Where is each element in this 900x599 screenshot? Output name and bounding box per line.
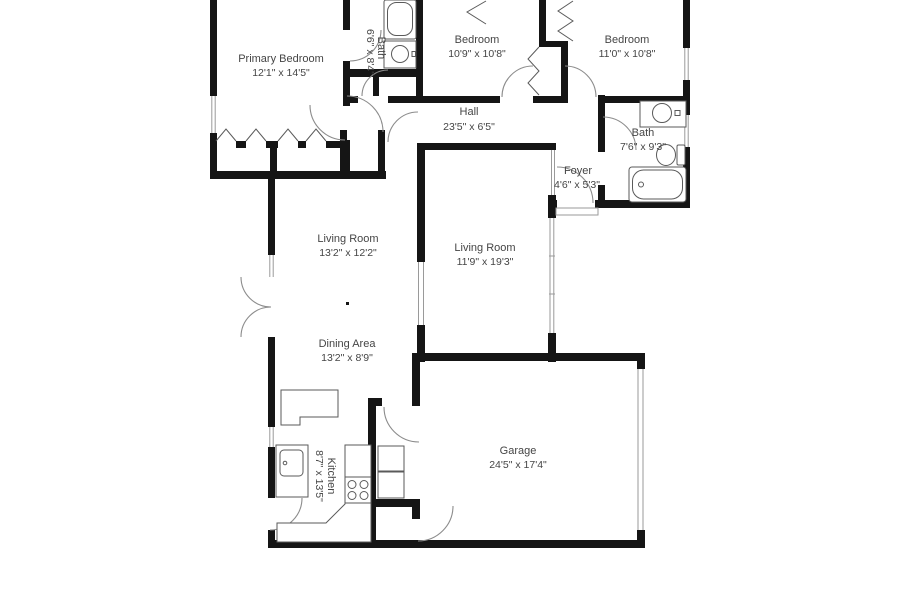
wall-segment <box>298 141 306 148</box>
bifold-door-icon <box>558 1 573 41</box>
wall-segment <box>210 0 217 96</box>
wall-segment <box>598 95 605 152</box>
wall-segment <box>388 96 500 103</box>
room-dims: 13'2" x 8'9" <box>321 352 373 364</box>
sink-icon <box>640 101 686 127</box>
room-label-living-room-2: Living Room 11'9" x 19'3" <box>454 242 515 268</box>
window <box>549 218 555 333</box>
room-dims: 24'5" x 17'4" <box>489 459 547 471</box>
interior-marker-dot <box>346 302 349 305</box>
room-label-bedroom-2: Bedroom 11'0" x 10'8" <box>599 34 656 60</box>
room-dims: 6'6" x 8'4" <box>364 29 376 75</box>
door-arc <box>384 407 419 442</box>
bifold-door-icon <box>467 1 486 24</box>
kitchen-counter <box>281 390 338 425</box>
floor-plan-drawing: Primary Bedroom 12'1" x 14'5" Bath 6'6" … <box>0 0 900 599</box>
wall-segment <box>561 41 568 103</box>
wall-segment <box>268 447 275 498</box>
room-name: Dining Area <box>319 338 377 350</box>
window <box>685 48 688 80</box>
wall-segment <box>637 530 645 540</box>
room-label-garage: Garage 24'5" x 17'4" <box>489 445 547 471</box>
bathtub-icon <box>629 167 686 202</box>
room-label-hall-bath: Bath 7'6" x 9'3" <box>620 127 666 153</box>
bifold-door-icon <box>216 129 236 141</box>
room-label-living-room-1: Living Room 13'2" x 12'2" <box>317 233 378 259</box>
bifold-door-icon <box>246 129 266 141</box>
wall-segment <box>268 337 275 427</box>
door-arc-french-door <box>241 277 271 307</box>
room-label-foyer: Foyer 4'6" x 5'3" <box>554 165 600 191</box>
room-label-dining-area: Dining Area 13'2" x 8'9" <box>319 338 377 364</box>
wall-segment <box>637 361 645 369</box>
bathtub-icon <box>384 0 416 39</box>
door-arc <box>310 105 345 140</box>
wall-segment <box>376 499 420 507</box>
room-dims: 23'5" x 6'5" <box>443 121 495 133</box>
garage-door <box>638 369 643 530</box>
appliance-box <box>378 472 404 498</box>
wall-segment <box>343 0 350 30</box>
stove-icon <box>345 477 371 503</box>
room-name: Hall <box>460 106 479 118</box>
wall-segment <box>270 148 277 172</box>
room-name: Primary Bedroom <box>238 53 324 65</box>
room-name: Living Room <box>454 242 515 254</box>
wall-segment <box>340 130 347 172</box>
porch-step <box>556 208 598 215</box>
wall-segment <box>416 0 423 103</box>
wall-opening-jambs <box>419 262 424 325</box>
wall-segment <box>378 130 385 172</box>
wall-segment <box>548 200 557 208</box>
wall-segment <box>373 77 379 96</box>
window <box>270 255 273 277</box>
appliance-box <box>378 446 404 471</box>
door-arc <box>502 66 533 97</box>
room-label-bedroom-1: Bedroom 10'9" x 10'8" <box>448 34 506 60</box>
window <box>212 96 215 133</box>
room-dims: 11'0" x 10'8" <box>599 48 656 60</box>
bifold-door-icon <box>528 47 539 95</box>
room-dims: 7'6" x 9'3" <box>620 141 666 153</box>
wall-segment <box>236 141 246 148</box>
room-label-kitchen: Kitchen 8'7" x 13'5" <box>313 450 337 502</box>
room-name: Kitchen <box>325 458 337 495</box>
bifold-door-icon <box>306 129 326 141</box>
sink-icon <box>384 41 416 68</box>
room-name: Foyer <box>564 165 592 177</box>
wall-segment <box>210 171 386 179</box>
door-arc <box>418 506 453 541</box>
bifold-door-icon <box>278 129 298 141</box>
room-dims: 13'2" x 12'2" <box>319 247 377 259</box>
wall-segment <box>417 143 556 150</box>
room-name: Garage <box>500 445 537 457</box>
wall-segment <box>268 179 275 255</box>
wall-segment <box>417 353 645 361</box>
room-label-hall: Hall 23'5" x 6'5" <box>443 106 495 133</box>
floor-plan-canvas: Primary Bedroom 12'1" x 14'5" Bath 6'6" … <box>0 0 900 599</box>
room-label-primary-bedroom: Primary Bedroom 12'1" x 14'5" <box>238 53 324 79</box>
wall-segment <box>412 507 420 519</box>
wall-segment <box>412 353 420 406</box>
room-dims: 4'6" x 5'3" <box>554 179 600 191</box>
wall-segment <box>539 0 546 47</box>
wall-segment <box>533 96 565 103</box>
kitchen-sink-icon <box>276 445 308 497</box>
room-dims: 10'9" x 10'8" <box>448 48 506 60</box>
room-dims: 12'1" x 14'5" <box>252 67 310 79</box>
room-name: Living Room <box>317 233 378 245</box>
room-name: Bedroom <box>455 34 500 46</box>
window <box>270 427 273 447</box>
door-arc <box>565 66 596 97</box>
wall-segment <box>266 141 278 148</box>
room-name: Bedroom <box>605 34 650 46</box>
room-dims: 11'9" x 19'3" <box>457 256 514 268</box>
door-arc-french-door <box>241 307 271 337</box>
wall-segment <box>417 143 425 262</box>
room-name: Bath <box>632 127 655 139</box>
door-arc <box>388 112 418 142</box>
wall-segment <box>683 0 690 48</box>
room-dims: 8'7" x 13'5" <box>313 450 325 502</box>
